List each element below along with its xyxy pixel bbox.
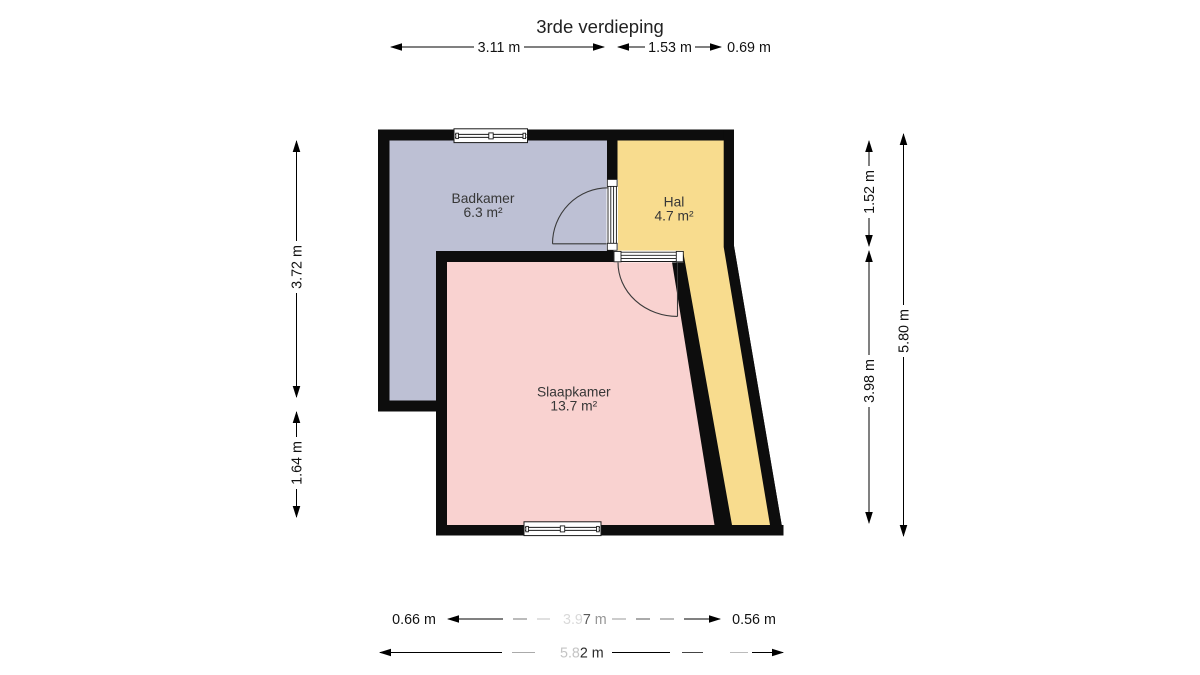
svg-text:0.66 m: 0.66 m	[392, 612, 436, 628]
svg-text:3.72 m: 3.72 m	[290, 245, 306, 289]
svg-text:0.69 m: 0.69 m	[727, 40, 771, 56]
svg-text:3rde verdieping: 3rde verdieping	[536, 16, 664, 37]
svg-text:0.56 m: 0.56 m	[732, 612, 776, 628]
svg-text:3.97 m: 3.97 m	[563, 612, 607, 628]
svg-text:13.7 m²: 13.7 m²	[550, 398, 597, 413]
svg-text:Badkamer: Badkamer	[452, 191, 515, 206]
svg-text:1.53 m: 1.53 m	[648, 40, 692, 56]
svg-text:4.7 m²: 4.7 m²	[654, 209, 694, 224]
svg-text:6.3 m²: 6.3 m²	[463, 205, 503, 220]
svg-text:5.80 m: 5.80 m	[897, 309, 913, 353]
svg-text:Hal: Hal	[664, 194, 685, 209]
svg-text:1.52 m: 1.52 m	[862, 170, 878, 214]
svg-text:3.11 m: 3.11 m	[478, 40, 521, 56]
svg-text:1.64 m: 1.64 m	[290, 441, 306, 485]
svg-text:5.82 m: 5.82 m	[560, 646, 604, 662]
svg-text:3.98 m: 3.98 m	[862, 359, 878, 403]
